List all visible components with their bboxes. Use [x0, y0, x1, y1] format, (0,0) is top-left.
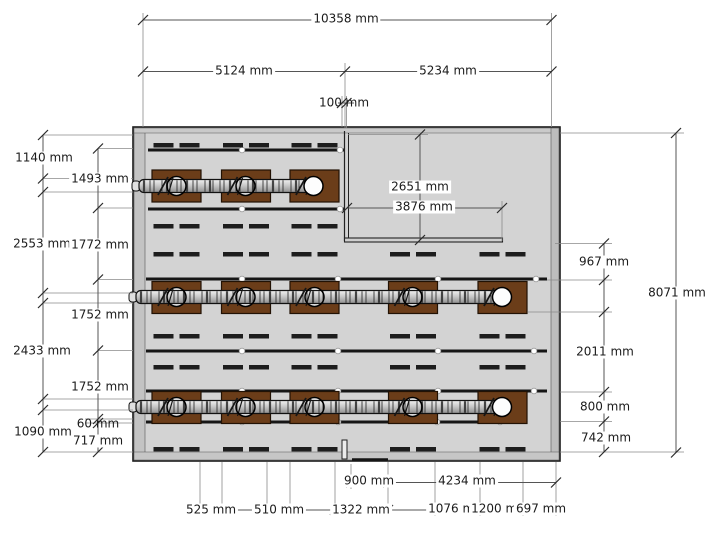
- floor-dash: [506, 252, 526, 257]
- auger-end-bearing: [304, 177, 323, 196]
- floor-dash: [180, 334, 200, 339]
- dim-510: 510 mm: [252, 504, 306, 517]
- floor-dash: [480, 365, 500, 370]
- floor-dash: [292, 252, 312, 257]
- floor-dash: [318, 365, 338, 370]
- rail-node-dot: [337, 147, 343, 153]
- floor-dash: [390, 447, 410, 452]
- partition-wall-bottom: [345, 238, 503, 242]
- rail-node-dot: [337, 206, 343, 212]
- dim-1493: 1493 mm: [69, 173, 131, 186]
- dim-2433: 2433 mm: [11, 345, 73, 358]
- floor-dash: [223, 365, 243, 370]
- floor-dash: [292, 224, 312, 229]
- dim-5124: 5124 mm: [213, 65, 275, 78]
- floor-dash: [318, 334, 338, 339]
- floor-dash: [506, 334, 526, 339]
- rail-node-dot: [335, 348, 341, 354]
- floor-dash: [318, 224, 338, 229]
- auger-end-bearing: [493, 288, 512, 307]
- dim-1752-lower: 1752 mm: [69, 381, 131, 394]
- floor-dash: [154, 224, 174, 229]
- rail-node-dot: [239, 206, 245, 212]
- floor-plan-drawing: 10358 mm 5124 mm 5234 mm 100 mm 1140 mm …: [0, 0, 718, 538]
- floor-dash: [416, 334, 436, 339]
- floor-dash: [318, 252, 338, 257]
- rail-node-dot: [531, 348, 537, 354]
- right-wall: [551, 128, 559, 460]
- floor-dash: [180, 447, 200, 452]
- floor-dash: [480, 447, 500, 452]
- dim-525: 525 mm: [184, 504, 238, 517]
- dim-967: 967 mm: [577, 256, 631, 269]
- floor-dash: [292, 447, 312, 452]
- floor-dash: [154, 252, 174, 257]
- floor-dash: [292, 334, 312, 339]
- dim-1140: 1140 mm: [13, 152, 75, 165]
- floor-dash: [416, 252, 436, 257]
- dim-100: 100 mm: [319, 97, 369, 110]
- dim-1752-upper: 1752 mm: [69, 309, 131, 322]
- dim-717: 717 mm: [71, 435, 125, 448]
- floor-dash: [390, 365, 410, 370]
- dim-1772: 1772 mm: [69, 239, 131, 252]
- floor-dash: [180, 365, 200, 370]
- auger-screw-conveyor: [129, 288, 512, 307]
- dim-1322: 1322 mm: [330, 504, 392, 517]
- dim-2011: 2011 mm: [574, 346, 636, 359]
- floor-dash: [292, 143, 312, 148]
- auger-screw-conveyor: [132, 177, 323, 196]
- floor-dash: [318, 447, 338, 452]
- rail-node-dot: [531, 388, 537, 394]
- plan-svg: [0, 0, 718, 538]
- dim-2553: 2553 mm: [11, 238, 73, 251]
- rail-node-dot: [239, 147, 245, 153]
- floor-dash: [154, 143, 174, 148]
- top-wall: [134, 128, 559, 133]
- rail-node-dot: [435, 348, 441, 354]
- floor-dash: [249, 447, 269, 452]
- floor-dash: [480, 252, 500, 257]
- dim-1090: 1090 mm: [12, 426, 74, 439]
- floor-dash: [154, 334, 174, 339]
- floor-dash: [416, 447, 436, 452]
- dim-60: 60 mm: [77, 418, 119, 431]
- floor-dash: [180, 224, 200, 229]
- floor-dash: [506, 365, 526, 370]
- dim-900: 900 mm: [342, 475, 396, 488]
- dim-3876: 3876 mm: [393, 201, 455, 214]
- floor-dash: [223, 252, 243, 257]
- auger-end-bearing: [493, 398, 512, 417]
- floor-dash: [390, 252, 410, 257]
- floor-dash: [292, 365, 312, 370]
- floor-dash: [180, 252, 200, 257]
- dim-742: 742 mm: [579, 432, 633, 445]
- dim-800: 800 mm: [578, 401, 632, 414]
- dim-4234: 4234 mm: [436, 475, 498, 488]
- floor-dash: [249, 224, 269, 229]
- dim-10358: 10358 mm: [311, 13, 380, 26]
- floor-dash: [223, 447, 243, 452]
- floor-dash: [390, 334, 410, 339]
- floor-dash: [249, 365, 269, 370]
- auger-screw-conveyor: [129, 398, 512, 417]
- floor-dash: [249, 252, 269, 257]
- floor-dash: [249, 143, 269, 148]
- dim-697: 697 mm: [514, 503, 568, 516]
- floor-dash: [223, 334, 243, 339]
- dim-2651: 2651 mm: [389, 181, 451, 194]
- floor-dash: [154, 365, 174, 370]
- rail-node-dot: [533, 276, 539, 282]
- floor-dash: [249, 334, 269, 339]
- dim-8071: 8071 mm: [646, 287, 708, 300]
- floor-dash: [180, 143, 200, 148]
- dim-5234: 5234 mm: [417, 65, 479, 78]
- door-leaf: [342, 440, 347, 459]
- floor-dash: [318, 143, 338, 148]
- floor-dash: [154, 447, 174, 452]
- floor-dash: [416, 365, 436, 370]
- floor-dash: [223, 143, 243, 148]
- floor-dash: [223, 224, 243, 229]
- floor-dash: [480, 334, 500, 339]
- rail-node-dot: [239, 348, 245, 354]
- floor-dash: [506, 447, 526, 452]
